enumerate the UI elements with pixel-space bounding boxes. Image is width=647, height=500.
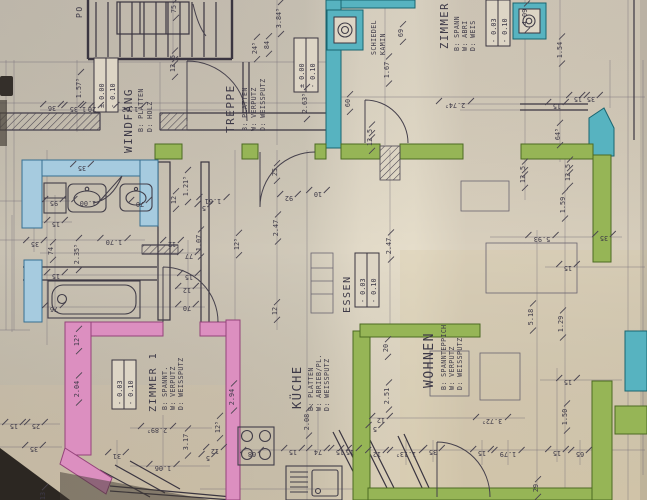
dimension-label: 2.47: [385, 238, 393, 254]
dimension-label: 36: [48, 104, 56, 112]
dimension-label: 12⁵: [214, 421, 222, 433]
room-spec: D: WEISSPUTZ: [177, 358, 185, 410]
dimension-label: 15: [289, 448, 297, 456]
dimension-label: 1.29: [557, 316, 565, 332]
dimension-label: 68: [248, 450, 256, 458]
dimension-label: 60: [344, 99, 352, 107]
room-spec: D: WEISSPUTZ: [259, 79, 267, 131]
dimension-label: 35: [600, 234, 608, 242]
dimension-label: 35: [429, 448, 437, 456]
dimension-label: 1.62: [122, 105, 138, 113]
dimension-label: 15: [346, 448, 354, 456]
dimension-label: 92: [285, 194, 293, 202]
room-spec: D: HOLZ: [146, 101, 154, 132]
dimension-label: 12: [271, 307, 279, 315]
dimension-label: 3.17: [182, 434, 190, 450]
room-spec: B: SPANN: [453, 16, 461, 51]
dimension-label: 35: [30, 445, 38, 453]
dimension-label: 12: [168, 240, 176, 248]
dimension-label: 12⁵: [233, 238, 241, 250]
dimension-label: 12: [519, 175, 527, 183]
dimension-label: 2.63⁵: [301, 93, 309, 113]
dimension-label: 35: [78, 164, 86, 172]
level-value: ± 0.00: [298, 63, 306, 88]
dimension-label: 2.08: [303, 414, 311, 430]
room-spec: B: PLATTEN: [241, 87, 249, 131]
level-value: - 0.10: [370, 278, 378, 303]
dimension-label: 12: [366, 138, 374, 146]
level-marker-zimmer: - 0.03 - 0.10: [486, 0, 510, 46]
stair-label: PO: [75, 5, 84, 18]
dimension-label: 12: [170, 196, 178, 204]
room-label-treppe: TREPPE: [224, 84, 237, 133]
dimension-label: 25: [32, 422, 40, 430]
dimension-label: 5: [206, 454, 210, 462]
dimension-label: 4.09: [521, 9, 529, 25]
dimension-label: 12: [183, 286, 191, 294]
room-spec: D: WEIS: [469, 20, 477, 51]
room-spec: W: VERPUTZ: [448, 346, 456, 390]
dimension-label: 1.07: [195, 235, 203, 251]
dimension-label: 76: [50, 305, 58, 313]
dimension-label: 84: [263, 41, 271, 49]
dimension-label: 1.21⁵: [182, 176, 190, 196]
dimension-label: 15: [10, 422, 18, 430]
dimension-label: 5.18: [527, 309, 535, 325]
room-spec: D: WEISSPUTZ: [456, 338, 464, 390]
dimension-label: 2.47: [272, 220, 280, 236]
dimension-label: 2.94: [228, 389, 236, 405]
dimension-label: 1.00: [80, 199, 96, 207]
dimension-label: 69: [397, 29, 405, 37]
level-value: - 0.03: [490, 18, 498, 43]
dimension-label: 1.67: [383, 62, 391, 78]
dimension-label: 12: [564, 173, 572, 181]
dimension-label: 74: [314, 448, 322, 456]
room-spec: D: WEISSPUTZ: [323, 359, 331, 411]
level-marker-zimmer1: - 0.03 - 0.10: [112, 360, 136, 409]
dimension-label: 2.89⁵: [147, 426, 167, 434]
dimension-label: 12: [169, 64, 177, 72]
floor-plan-photo: PO WINDFANG B: PLATTEN D: HOLZ TREPPE B:…: [0, 0, 647, 500]
dimension-label: 15: [553, 102, 561, 110]
room-label-windfang: WINDFANG: [122, 88, 135, 153]
dimension-label: 29: [532, 484, 540, 492]
dimension-label: 77: [185, 252, 193, 260]
room-spec: W: VERPUTZ: [169, 366, 177, 410]
dimension-label: 1.54: [556, 42, 564, 58]
dimension-label: 15: [52, 220, 60, 228]
dimension-label: 1.06: [155, 464, 171, 472]
dimension-label: 74: [47, 247, 55, 255]
dimension-label: 75: [170, 5, 178, 13]
chimney-label: SCHIEDEL: [370, 20, 378, 55]
room-label-zimmer: ZIMMER: [439, 2, 451, 49]
dimension-label: 15: [564, 264, 572, 272]
dimension-label: 25: [271, 168, 279, 176]
dimension-label: 70: [136, 200, 144, 208]
dimension-label: 12: [373, 450, 381, 458]
dimension-label: 5: [202, 204, 206, 212]
room-spec: W: ABRIEB/PL.: [315, 354, 323, 411]
level-marker-essen: - 0.03 - 0.10: [355, 253, 379, 307]
chimney-icon: [334, 17, 356, 43]
room-spec: B: SPANNT.: [161, 366, 169, 410]
dimension-label: 1.70: [106, 238, 122, 246]
dimension-label: 35: [31, 240, 39, 248]
dimension-label: 1.13⁵: [396, 450, 416, 458]
dimension-label: 64⁵: [554, 128, 562, 140]
dimension-label: 35: [587, 95, 595, 103]
dimension-label: 12⁵: [73, 334, 81, 346]
room-spec: B: SPANNTEPPICH: [440, 324, 448, 390]
dimension-label: 15: [185, 273, 193, 281]
dimension-label: 15: [574, 95, 582, 103]
level-marker-treppe: ± 0.00 - 0.10: [294, 38, 318, 92]
dimension-label: 20: [382, 344, 390, 352]
dimension-label: 95: [50, 199, 58, 207]
dimension-label: 5.93: [534, 235, 550, 243]
level-value: - 0.10: [501, 18, 509, 43]
dimension-label: 1.59: [559, 197, 567, 213]
dimension-label: 2.51: [383, 388, 391, 404]
room-label-kueche: KÜCHE: [288, 365, 304, 409]
room-spec: B: PLATTEN: [307, 367, 315, 411]
level-value: - 0.10: [127, 380, 135, 405]
floor-plan-drawing: PO WINDFANG B: PLATTEN D: HOLZ TREPPE B:…: [0, 0, 647, 500]
dimension-label: 20: [88, 105, 96, 113]
room-label-zimmer1: ZIMMER 1: [148, 352, 159, 412]
dimension-label: 3.72⁵: [482, 417, 502, 425]
level-value: - 0.03: [116, 380, 124, 405]
room-spec: W: ABRI: [461, 20, 469, 51]
dimension-label: 5: [373, 425, 377, 433]
dimension-label: 70: [183, 304, 191, 312]
room-label-essen: ESSEN: [342, 275, 353, 313]
dimension-label: 2.74⁵: [445, 101, 465, 109]
room-spec: W: VERPUTZ: [250, 87, 258, 131]
dimension-label: 1.57⁵: [75, 78, 83, 98]
dimension-label: 1.50: [561, 409, 569, 425]
dimension-label: 24⁵: [251, 42, 259, 54]
dimension-label: 10: [314, 190, 322, 198]
level-value: - 0.10: [109, 83, 117, 108]
dimension-label: 2.04: [73, 381, 81, 397]
dimension-label: 15: [564, 378, 572, 386]
dimension-label: 15: [553, 449, 561, 457]
chimney-label: KAMIN: [379, 33, 387, 55]
dimension-label: 3.84⁵: [275, 8, 283, 28]
dimension-label: 1.79: [500, 450, 516, 458]
dimension-label: 13: [39, 492, 47, 500]
dimension-label: 65: [576, 450, 584, 458]
level-value: - 0.03: [359, 278, 367, 303]
level-marker-windfang: ± 0.00 - 0.10: [94, 58, 118, 112]
dimension-label: 15: [52, 272, 60, 280]
dimension-label: 15: [478, 449, 486, 457]
dimension-label: 2.35⁵: [73, 244, 81, 264]
dimension-label: 31: [113, 452, 121, 460]
room-label-wohnen: WOHNEN: [422, 332, 437, 388]
dimension-label: 1.35: [70, 105, 86, 113]
